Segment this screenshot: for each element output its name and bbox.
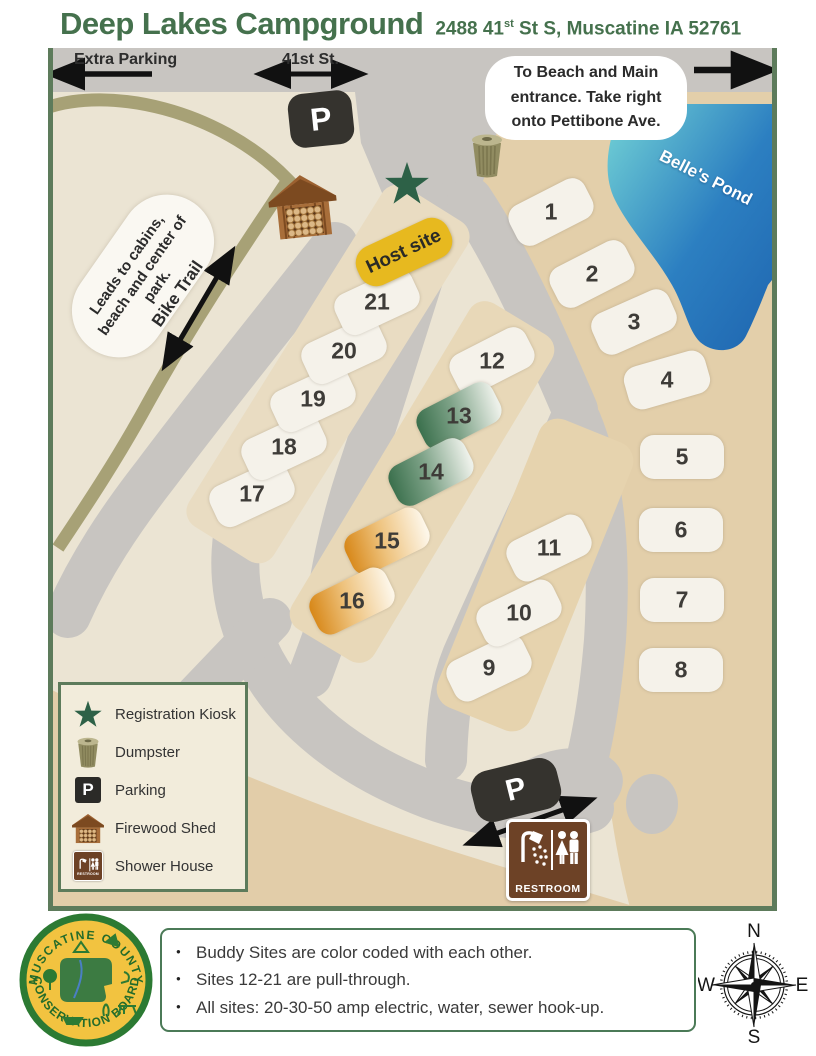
campsite-number: 20 xyxy=(331,338,357,365)
beach-note-line: To Beach and Main xyxy=(514,61,659,86)
legend-label: Dumpster xyxy=(115,744,180,761)
campsite-number: 10 xyxy=(506,600,532,627)
legend-label: Firewood Shed xyxy=(115,820,216,837)
legend-label: Parking xyxy=(115,782,166,799)
campsite-number: 2 xyxy=(586,261,599,288)
legend-row: P Parking xyxy=(71,771,245,809)
legend: Registration Kiosk Dumpster P Parking Fi… xyxy=(58,682,248,892)
header: Deep Lakes Campground 2488 41st St S, Mu… xyxy=(60,6,741,42)
legend-label: Registration Kiosk xyxy=(115,706,236,723)
beach-note-line: onto Pettibone Ave. xyxy=(511,110,660,135)
compass-s: S xyxy=(748,1027,761,1046)
note-item: All sites: 20-30-50 amp electric, water,… xyxy=(196,994,694,1022)
legend-row: Registration Kiosk xyxy=(71,695,245,733)
registration-kiosk-icon xyxy=(383,161,431,207)
campsite-number: 5 xyxy=(676,444,689,471)
address: 2488 41st St S, Muscatine IA 52761 xyxy=(435,18,741,40)
parking-letter: P xyxy=(308,99,333,138)
beach-note-line: entrance. Take right xyxy=(511,86,662,111)
campsite-number: 14 xyxy=(418,459,444,486)
campsite-number: 7 xyxy=(676,587,689,614)
parking-letter: P xyxy=(502,771,530,809)
campsite-number: 9 xyxy=(483,655,496,682)
notes-list: Buddy Sites are color coded with each ot… xyxy=(162,939,694,1022)
campsite-number: 21 xyxy=(364,289,390,316)
compass-e: E xyxy=(796,975,809,996)
firewood-shed-icon xyxy=(264,169,343,242)
campsite-number: 4 xyxy=(661,367,674,394)
map-border-right xyxy=(772,48,777,911)
legend-row: Dumpster xyxy=(71,733,245,771)
compass-rose: N E S W xyxy=(698,922,810,1046)
campsite-number: 3 xyxy=(628,309,641,336)
shower-house-sign: RESTROOM xyxy=(506,819,590,901)
parking-icon: P xyxy=(71,777,105,803)
campsite-number: 13 xyxy=(446,403,472,430)
legend-row: RESTROOM Shower House xyxy=(71,847,245,885)
campsite-number: 6 xyxy=(675,517,688,544)
campsite-number: 16 xyxy=(339,588,365,615)
campsite-number: 17 xyxy=(239,481,265,508)
shower-house-icon: RESTROOM xyxy=(71,851,105,881)
campsite-number: 1 xyxy=(545,199,558,226)
conservation-board-logo: MUSCATINE COUNTY CONSERVATION BOARD xyxy=(18,910,154,1050)
extra-parking-label: Extra Parking xyxy=(74,51,177,69)
compass-w: W xyxy=(698,975,715,996)
campsite-number: 12 xyxy=(479,348,505,375)
campsite-number: 19 xyxy=(300,386,326,413)
campground-map: Extra Parking 41st St. To Beach and Main… xyxy=(48,48,777,911)
logo-county-shape xyxy=(60,958,112,1002)
note-item: Sites 12-21 are pull-through. xyxy=(196,966,694,994)
page: Deep Lakes Campground 2488 41st St S, Mu… xyxy=(0,0,816,1056)
map-border-left xyxy=(48,48,53,911)
notes-box: Buddy Sites are color coded with each ot… xyxy=(160,928,696,1032)
compass-points xyxy=(712,943,796,1027)
registration-kiosk-icon xyxy=(71,700,105,729)
restroom-pictograms xyxy=(512,826,582,872)
campsite-number: 15 xyxy=(374,528,400,555)
campsite-number: 8 xyxy=(675,657,688,684)
firewood-shed-icon xyxy=(71,813,105,844)
campsite-number: 18 xyxy=(271,434,297,461)
street-label: 41st St. xyxy=(282,51,339,69)
dumpster-icon xyxy=(470,132,504,178)
legend-row: Firewood Shed xyxy=(71,809,245,847)
beach-note: To Beach and Main entrance. Take right o… xyxy=(485,56,687,140)
compass-n: N xyxy=(747,922,761,942)
restroom-word: RESTROOM xyxy=(515,883,580,895)
dumpster-icon xyxy=(71,736,105,768)
page-title: Deep Lakes Campground xyxy=(60,6,423,42)
map-border-bottom xyxy=(48,906,777,911)
parking-sign-north: P xyxy=(286,89,355,149)
legend-label: Shower House xyxy=(115,858,213,875)
campsite-number: 11 xyxy=(537,535,561,562)
note-item: Buddy Sites are color coded with each ot… xyxy=(196,939,694,967)
